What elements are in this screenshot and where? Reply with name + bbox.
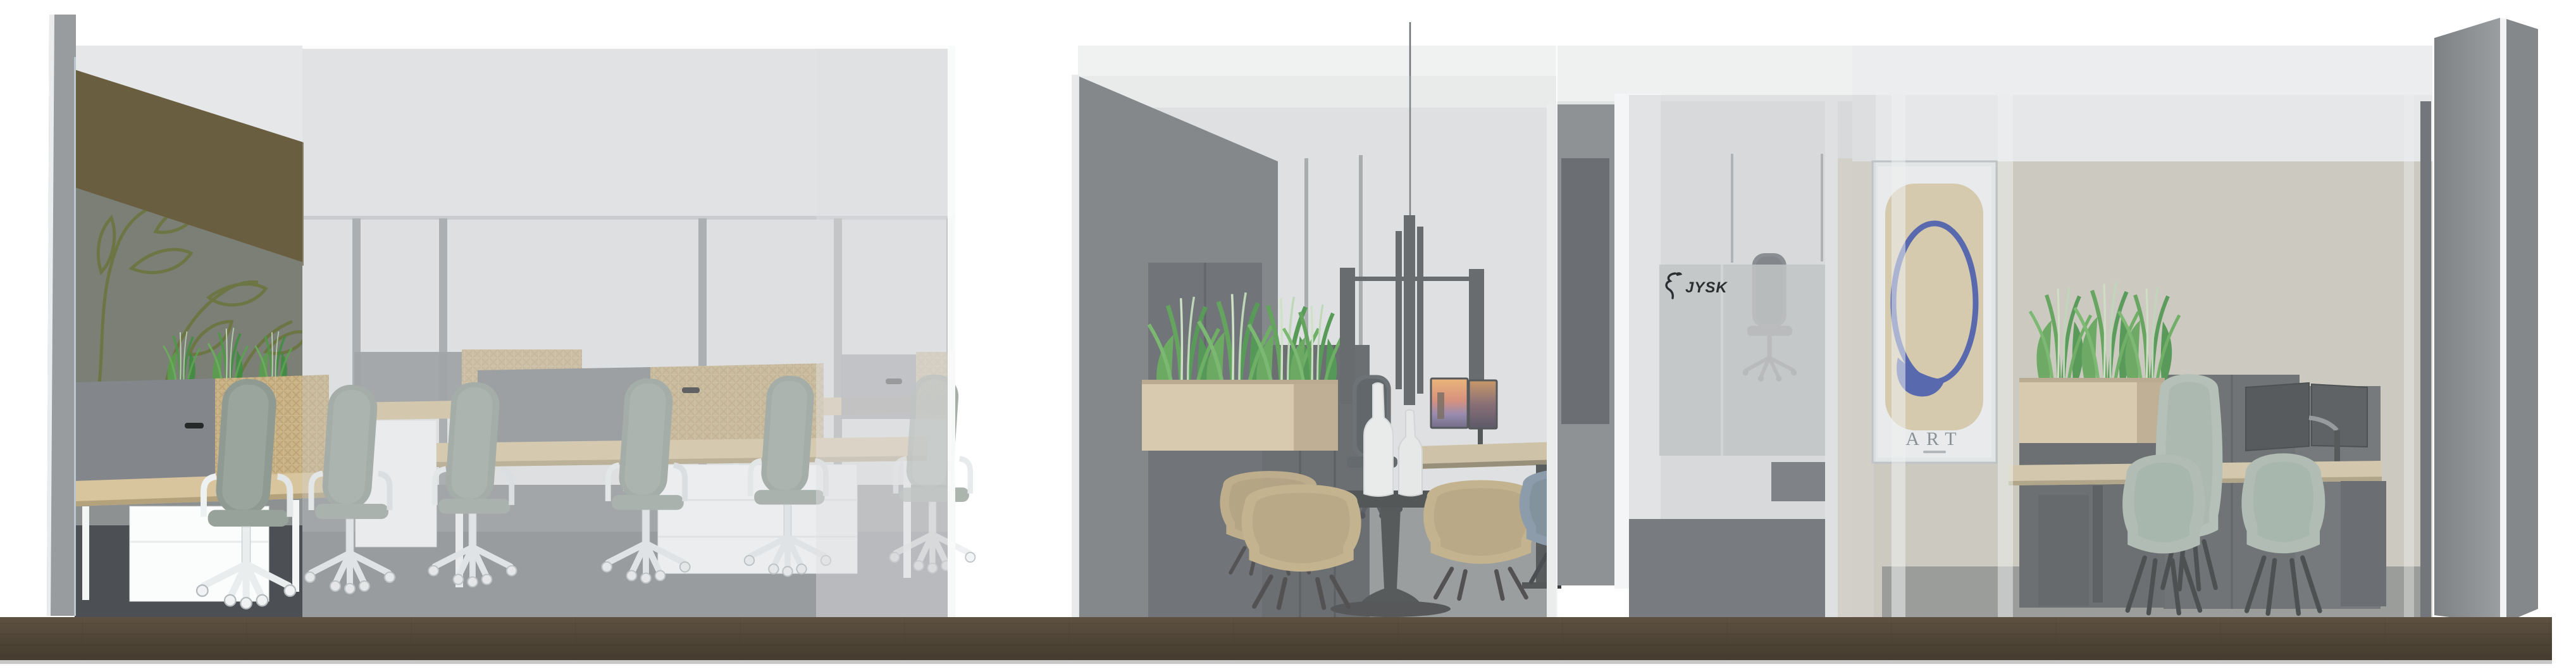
open-door-leaf — [2434, 18, 2500, 623]
gray-privacy-screen — [75, 378, 215, 485]
door-leaf-rear — [2506, 19, 2538, 622]
section-canvas: ART — [0, 0, 2576, 669]
door-edge-highlight — [2500, 18, 2506, 623]
glass-side-edge — [948, 46, 955, 617]
office-section-rendering: ART — [0, 0, 2576, 669]
dark-artwork — [1561, 158, 1609, 424]
glass-top-edge — [302, 46, 955, 49]
slab-bottom-line — [0, 660, 2552, 664]
door-assembly — [2420, 18, 2538, 623]
jysk-logo-text: JYSK — [1685, 279, 1728, 296]
meeting-room-glass — [1078, 76, 1556, 617]
glass-stile — [1998, 95, 2013, 617]
glass-stile — [1892, 95, 1905, 617]
glass-wash — [816, 46, 954, 617]
floor-slab — [0, 617, 2552, 664]
frosted-band — [1659, 265, 1825, 456]
floor-planks — [0, 617, 2552, 660]
office-glass — [1876, 95, 2432, 617]
glass-overlays — [302, 46, 2432, 617]
left-cut-wall — [47, 15, 76, 616]
white-desk-leg — [292, 500, 299, 592]
white-desk-leg — [82, 506, 89, 600]
door-frame — [2420, 101, 2431, 617]
cut-wall-glass-edge — [74, 57, 76, 616]
cable-grommet — [185, 423, 204, 428]
glass-stile — [2404, 95, 2414, 617]
ceiling-plane — [1557, 46, 1876, 103]
